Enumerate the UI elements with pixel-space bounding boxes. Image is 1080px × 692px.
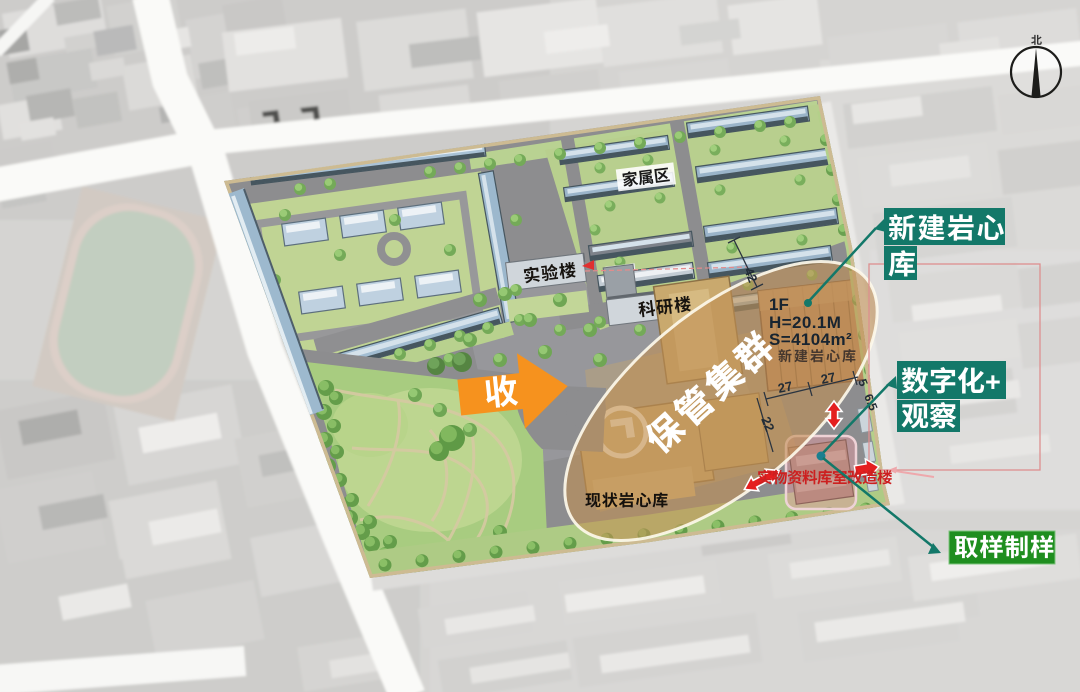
svg-text:27: 27 — [777, 378, 794, 396]
svg-text:1F: 1F — [769, 295, 789, 314]
svg-text:27: 27 — [820, 369, 837, 387]
svg-text:S=4104m²: S=4104m² — [769, 330, 852, 349]
svg-text:+: + — [985, 367, 1001, 397]
